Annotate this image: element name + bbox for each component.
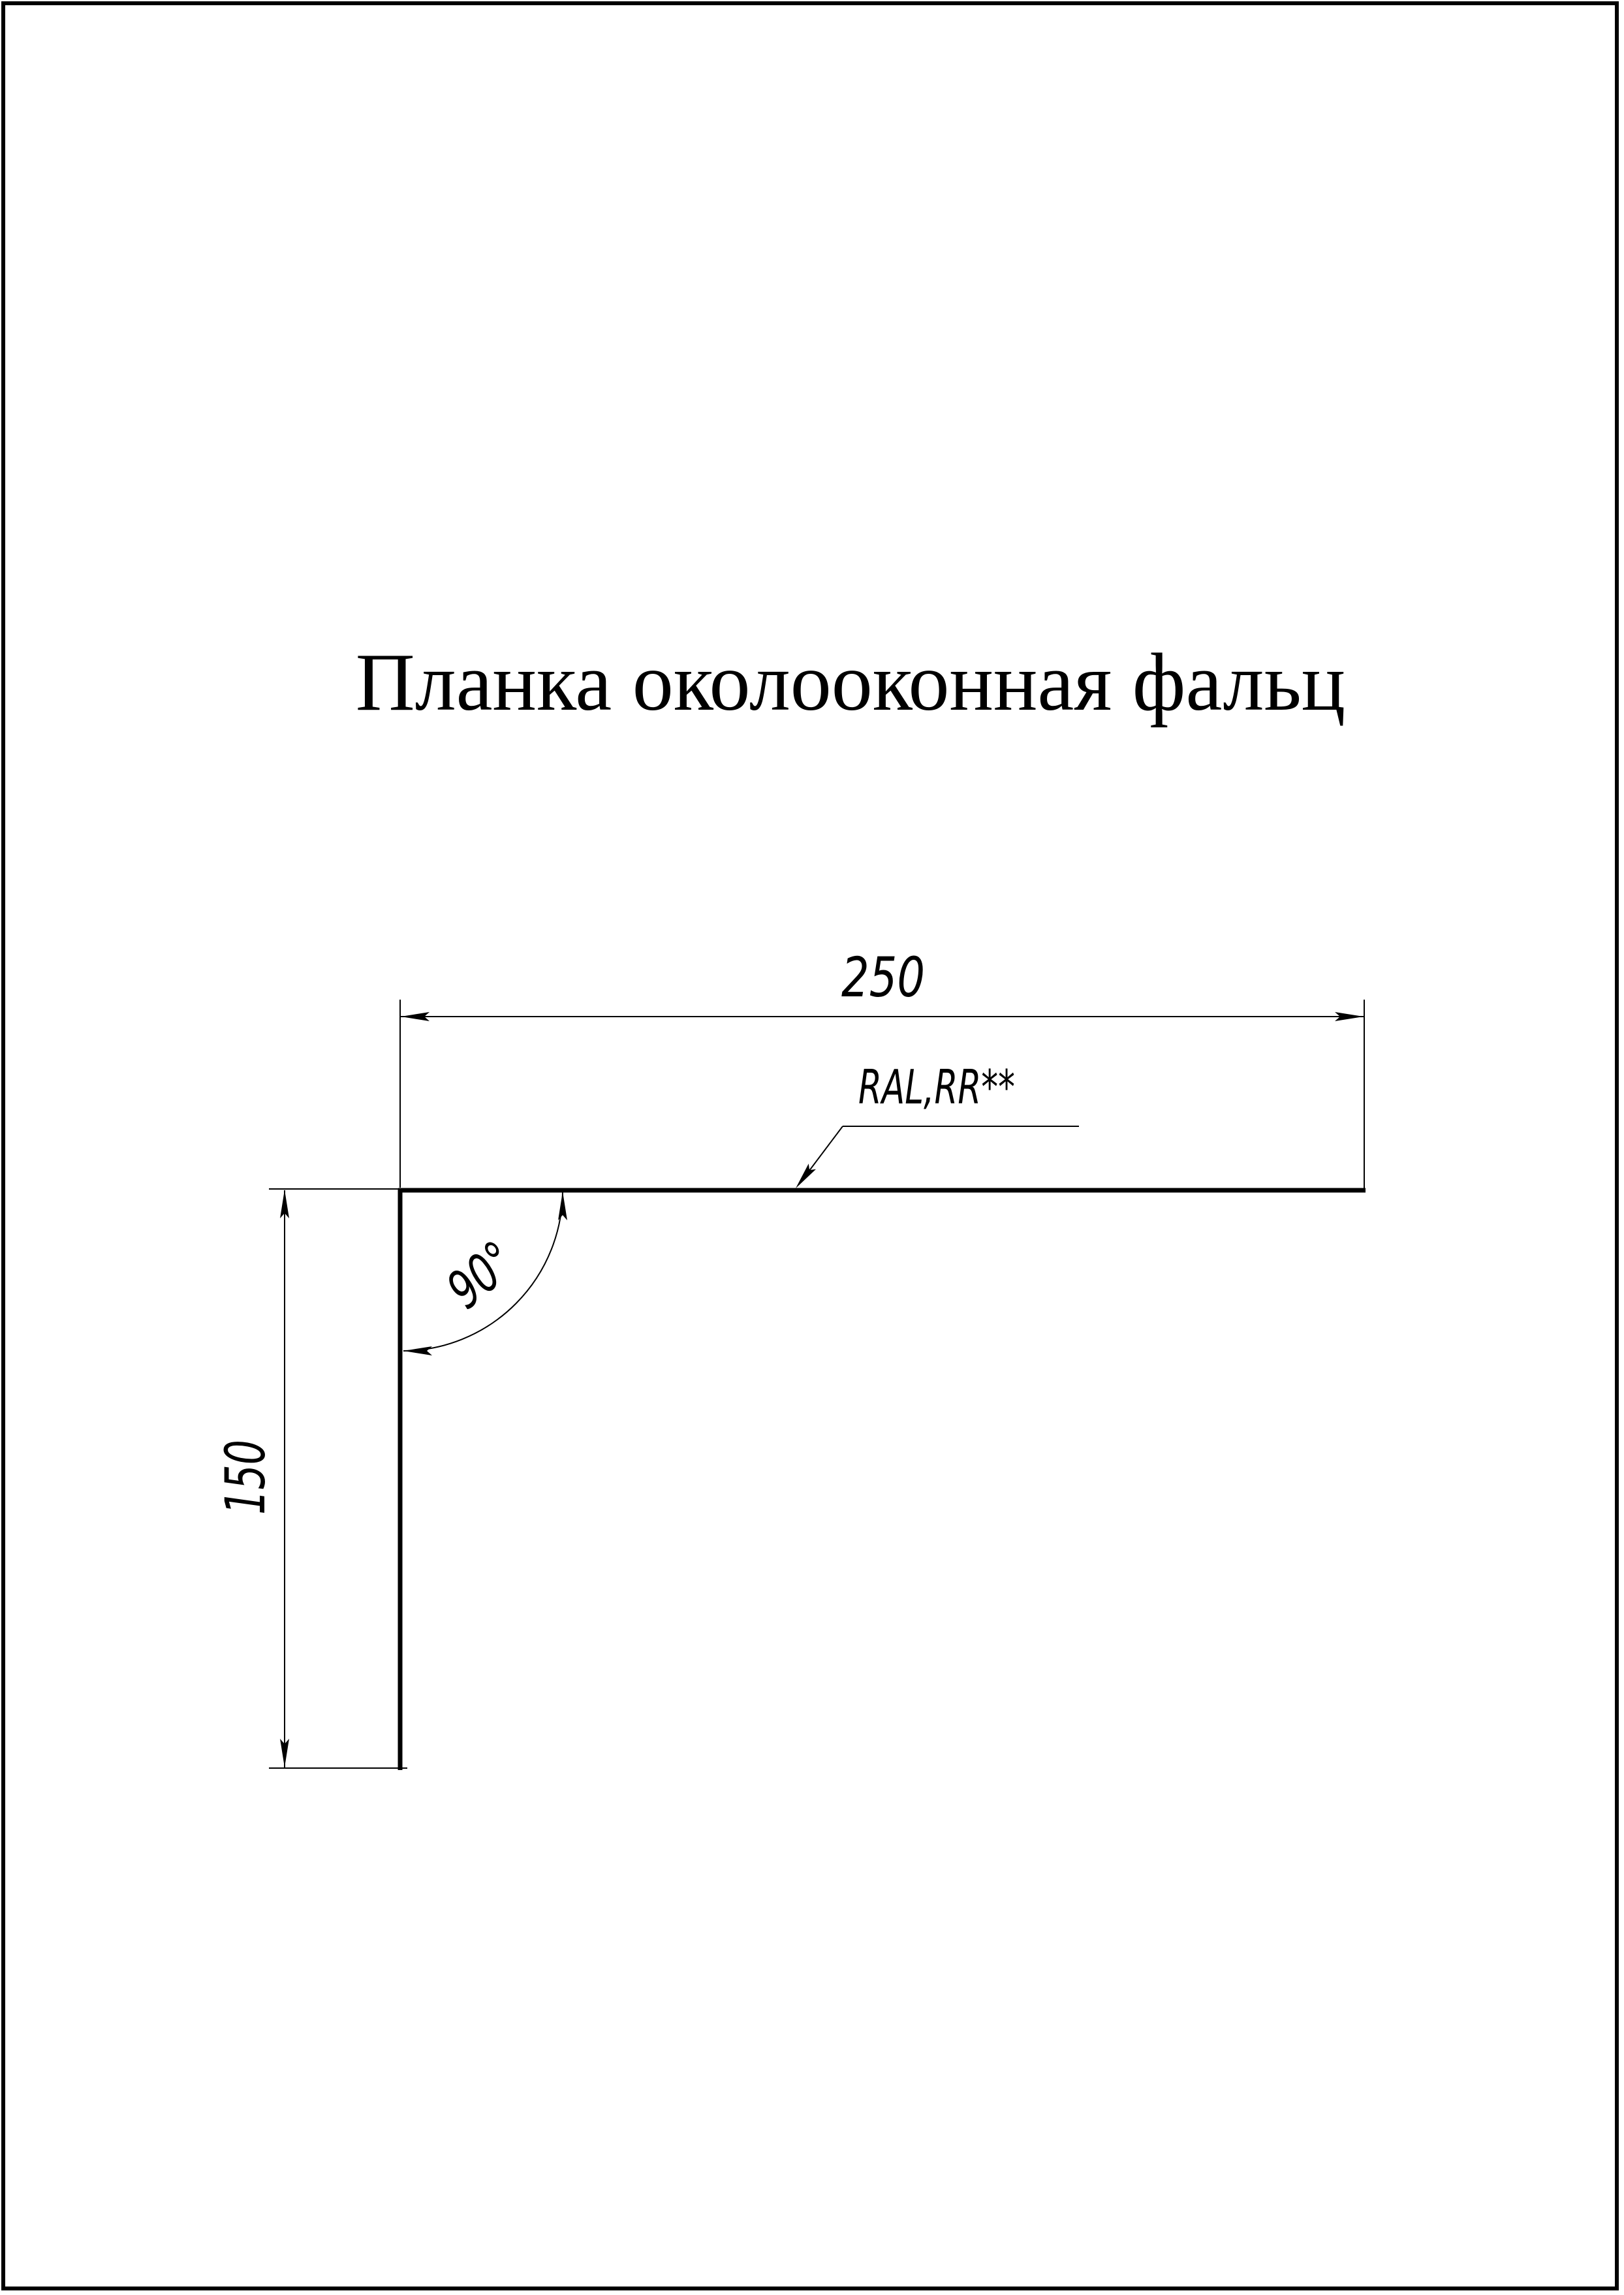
leader-arrow-icon	[796, 1163, 816, 1188]
profile-drawing: 250 150 90° RAL,RR**	[5, 5, 1619, 2290]
drawing-sheet: Планка околооконная фальц 250 150 90° RA…	[1, 1, 1619, 2290]
height-dimension-value: 150	[213, 1440, 277, 1515]
angle-arc-arrow-left-icon	[403, 1346, 432, 1355]
angle-arc-arrow-top-icon	[558, 1192, 567, 1220]
width-dimension-value: 250	[841, 945, 925, 1009]
coating-note-text: RAL,RR**	[858, 1060, 1015, 1115]
